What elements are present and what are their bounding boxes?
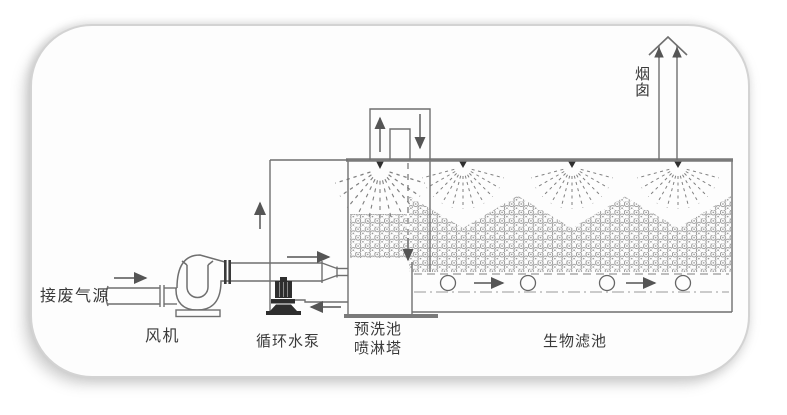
pump-suction-line <box>295 300 348 302</box>
label-biofilter: 生物滤池 <box>543 332 607 351</box>
inlet-pipe <box>106 285 177 307</box>
gooseneck-duct <box>370 109 430 160</box>
biofilter-media-bed <box>409 196 731 272</box>
label-pump: 循环水泵 <box>256 332 320 351</box>
pump-symbol <box>266 277 301 315</box>
label-prewash-line1: 预洗池 <box>354 320 402 339</box>
fan-symbol <box>176 255 231 317</box>
label-chimney: 烟囱 <box>633 66 650 98</box>
label-prewash-line2: 喷淋塔 <box>354 339 402 358</box>
chimney-stack <box>649 37 687 160</box>
spray-nozzles <box>376 161 682 169</box>
fan-discharge-duct <box>231 261 348 283</box>
label-fan: 风机 <box>145 327 180 346</box>
page: { "diagram": { "title_implied": "waste-g… <box>0 0 787 415</box>
prewash-media-bed <box>350 214 407 258</box>
label-inlet: 接废气源 <box>40 287 110 306</box>
air-plenum <box>414 276 729 293</box>
label-prewash-tower: 预洗池 喷淋塔 <box>354 320 402 358</box>
